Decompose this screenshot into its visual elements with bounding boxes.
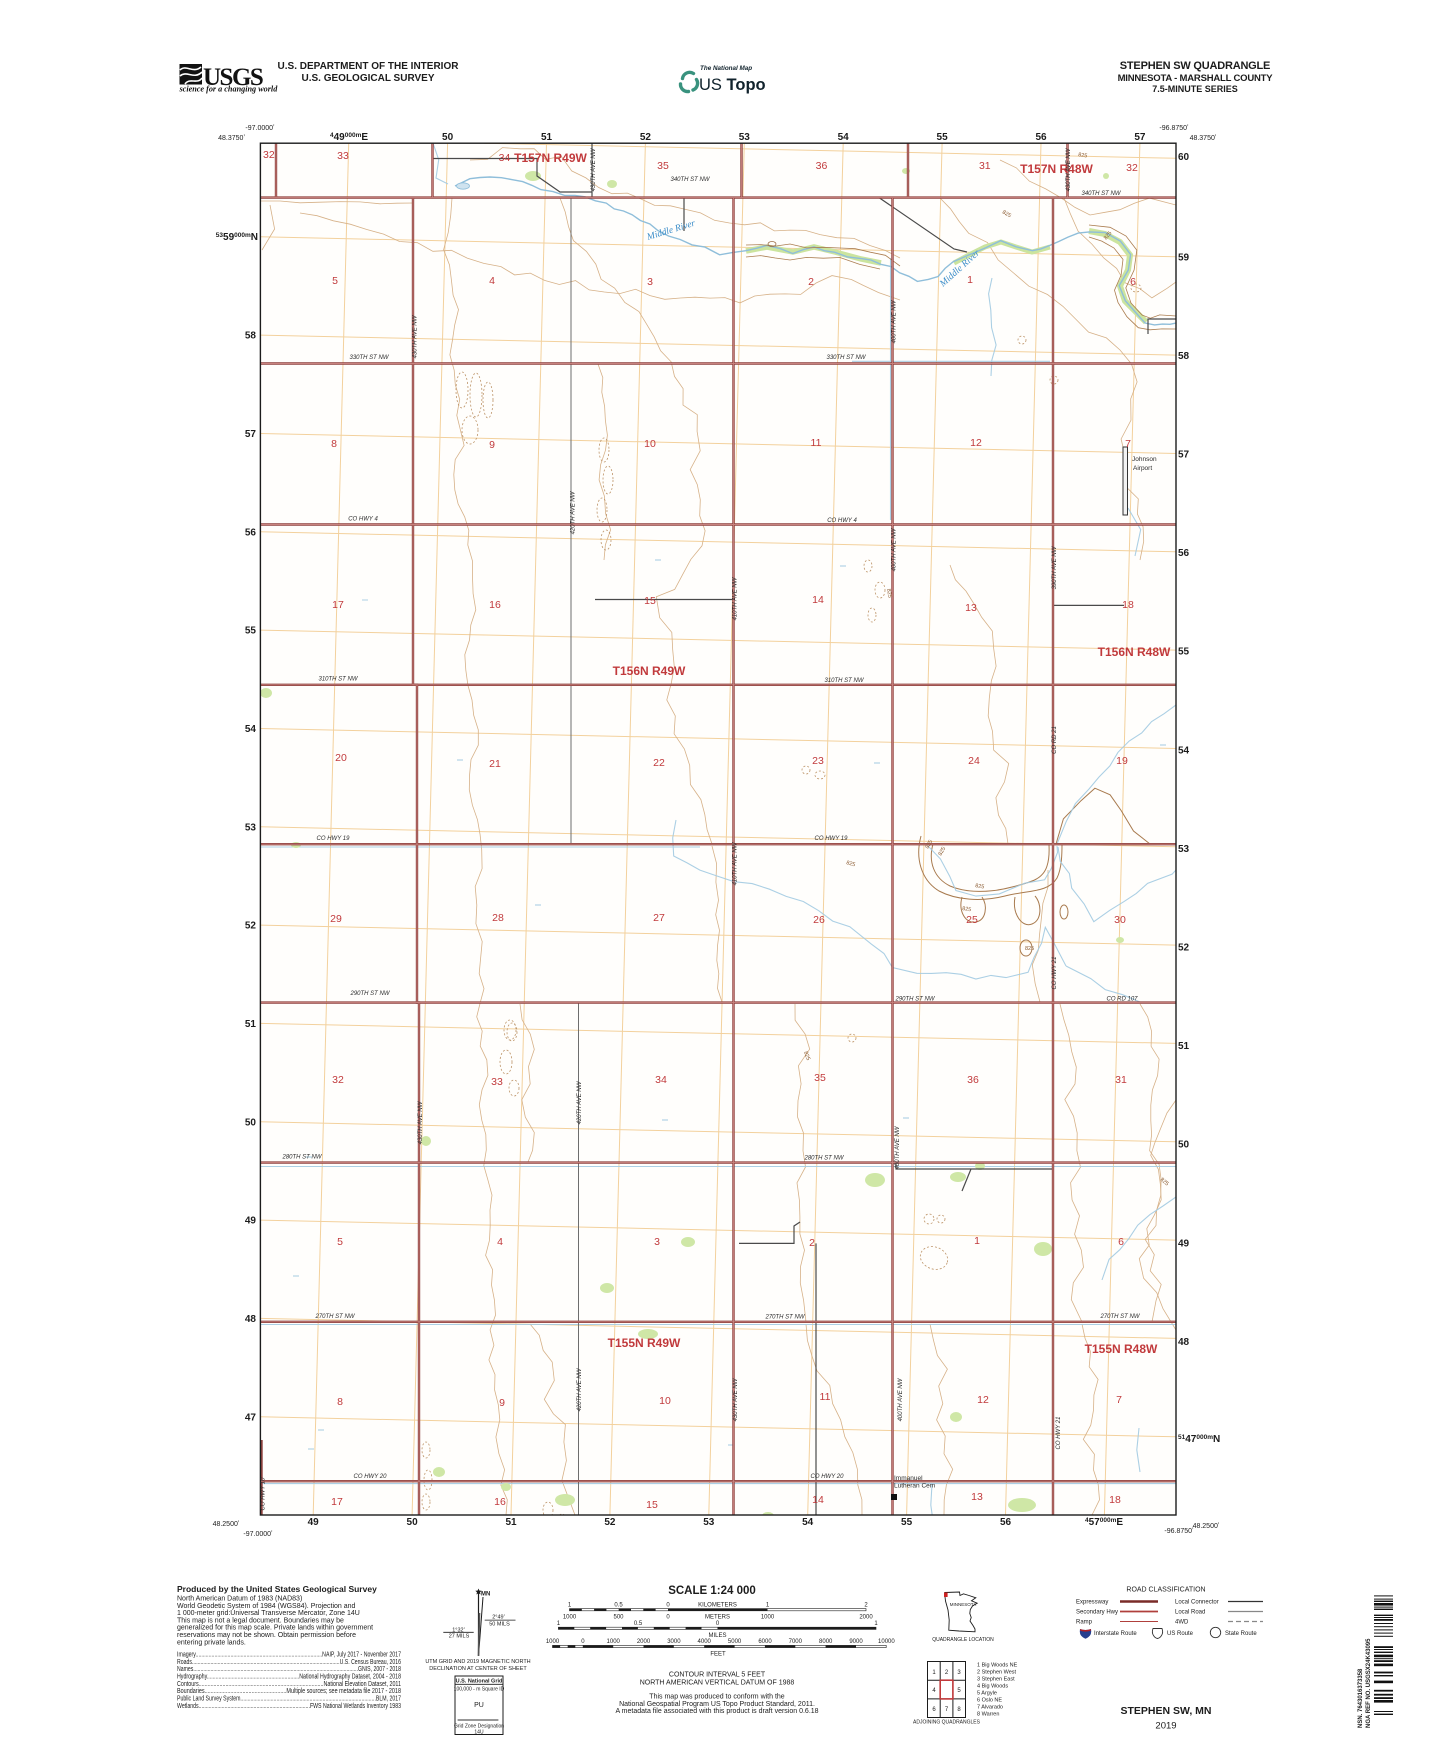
svg-text:420TH AVE NW: 420TH AVE NW [577,1367,583,1411]
svg-text:825: 825 [962,906,972,913]
svg-text:5147000mN: 5147000mN [1178,1434,1220,1445]
svg-text:16: 16 [494,1496,506,1508]
svg-text:57: 57 [1134,132,1146,143]
svg-text:50: 50 [1178,1140,1190,1151]
svg-text:6: 6 [1118,1236,1124,1248]
svg-text:53: 53 [1178,844,1190,855]
svg-text:3: 3 [647,276,653,288]
svg-text:NSN. 7643016373358: NSN. 7643016373358 [1358,1668,1364,1728]
svg-text:49: 49 [308,1517,320,1528]
svg-text:CO HWY 20: CO HWY 20 [811,1474,845,1480]
svg-text:T157N R48W: T157N R48W [1020,162,1093,176]
svg-text:13: 13 [971,1491,983,1503]
svg-text:52: 52 [245,921,257,932]
svg-text:Interstate Route: Interstate Route [1094,1631,1137,1637]
svg-text:CO HWY 20: CO HWY 20 [354,1474,388,1480]
svg-text:290TH ST NW: 290TH ST NW [349,991,390,997]
svg-text:A metadata file associated wit: A metadata file associated with this pro… [615,1708,818,1715]
svg-text:4 Big Woods: 4 Big Woods [977,1684,1008,1690]
svg-text:1 Big Woods NE: 1 Big Woods NE [977,1663,1018,1669]
svg-text:310TH ST NW: 310TH ST NW [824,678,864,684]
svg-text:330TH ST NW: 330TH ST NW [349,355,389,361]
svg-text:5: 5 [332,275,338,287]
svg-text:T156N R48W: T156N R48W [1098,645,1171,659]
svg-text:CO HWY 4: CO HWY 4 [348,517,378,523]
svg-text:science for a changing world: science for a changing world [179,85,279,94]
svg-text:Public Land Survey System.....: Public Land Survey System...............… [177,1696,401,1703]
svg-text:CO HWY 19: CO HWY 19 [317,836,351,842]
svg-text:2019: 2019 [1155,1721,1176,1732]
svg-text:5 Argyle: 5 Argyle [977,1691,997,1697]
svg-text:0: 0 [666,1615,670,1621]
svg-text:56: 56 [1000,1517,1012,1528]
svg-text:28: 28 [492,912,504,924]
svg-text:9: 9 [489,439,495,451]
svg-text:15: 15 [646,1499,658,1511]
svg-text:48: 48 [245,1314,257,1325]
svg-text:FEET: FEET [710,1651,726,1657]
svg-text:1000: 1000 [761,1615,775,1621]
svg-text:MILES: MILES [708,1633,726,1639]
svg-text:11: 11 [820,1391,831,1403]
svg-text:55: 55 [245,626,257,637]
svg-text:53: 53 [703,1517,715,1528]
svg-text:MINNESOTA: MINNESOTA [950,1602,976,1607]
svg-text:Ramp: Ramp [1076,1620,1093,1626]
svg-text:1: 1 [932,1670,936,1676]
svg-text:420TH AVE NW: 420TH AVE NW [577,1080,583,1124]
svg-text:Local Road: Local Road [1175,1610,1205,1616]
svg-text:11: 11 [811,437,822,449]
svg-text:2: 2 [945,1670,949,1676]
svg-text:825: 825 [1025,946,1034,952]
svg-text:CONTOUR INTERVAL 5 FEET: CONTOUR INTERVAL 5 FEET [669,1672,766,1679]
svg-text:54: 54 [1178,745,1190,756]
svg-text:32: 32 [263,149,275,161]
svg-text:3: 3 [654,1236,660,1248]
svg-text:430TH AVE NW: 430TH AVE NW [591,147,597,191]
svg-text:METERS: METERS [705,1615,730,1621]
svg-text:6 Oslo NE: 6 Oslo NE [977,1698,1002,1704]
svg-text:430TH AVE NW: 430TH AVE NW [418,1100,424,1144]
svg-text:CO HWY 19: CO HWY 19 [815,836,849,842]
svg-text:31: 31 [979,160,991,172]
svg-text:7: 7 [945,1707,949,1713]
svg-text:50 MILS: 50 MILS [489,1621,510,1627]
svg-text:56: 56 [1035,132,1047,143]
svg-text:8000: 8000 [819,1639,833,1645]
svg-text:1: 1 [967,274,973,286]
svg-text:entering private lands.: entering private lands. [177,1639,246,1646]
svg-text:29: 29 [330,913,342,925]
svg-text:55: 55 [937,132,949,143]
svg-text:27 MILS: 27 MILS [449,1634,470,1640]
svg-text:52: 52 [1178,943,1190,954]
svg-text:MINNESOTA - MARSHALL COUNTY: MINNESOTA - MARSHALL COUNTY [1118,73,1274,84]
svg-text:Produced by the United States: Produced by the United States Geological… [177,1584,377,1594]
svg-text:51: 51 [245,1019,257,1030]
svg-text:U.S. National Grid: U.S. National Grid [456,1679,503,1685]
svg-text:0: 0 [666,1602,670,1608]
svg-text:10000: 10000 [878,1639,895,1645]
svg-text:8 Warren: 8 Warren [977,1712,999,1718]
svg-text:7: 7 [1116,1394,1122,1406]
svg-text:51: 51 [541,132,553,143]
svg-text:7.5-MINUTE SERIES: 7.5-MINUTE SERIES [1152,84,1238,94]
svg-text:330TH ST NW: 330TH ST NW [826,355,866,361]
svg-text:5359000mN: 5359000mN [216,232,258,243]
svg-text:55: 55 [1178,647,1190,658]
svg-text:19: 19 [1116,755,1128,767]
svg-text:8: 8 [331,438,337,450]
svg-text:National Geospatial Program US: National Geospatial Program US Topo Prod… [619,1701,815,1708]
svg-text:2: 2 [809,1237,815,1249]
svg-text:Johnson: Johnson [1132,456,1157,463]
svg-text:4: 4 [489,275,495,287]
svg-text:reservations may not be shown.: reservations may not be shown. Obtain pe… [177,1632,356,1639]
svg-text:33: 33 [491,1076,503,1088]
svg-text:48.3750ʼ: 48.3750ʼ [1190,134,1217,142]
svg-text:1: 1 [974,1235,980,1247]
svg-text:51: 51 [505,1517,517,1528]
svg-text:Local Connector: Local Connector [1175,1600,1219,1606]
svg-text:T157N R49W: T157N R49W [514,151,587,165]
svg-text:generalized for this map scale: generalized for this map scale. Private … [177,1625,373,1632]
svg-text:CO HWY 21: CO HWY 21 [1052,957,1058,990]
svg-text:STEPHEN SW QUADRANGLE: STEPHEN SW QUADRANGLE [1120,60,1270,72]
svg-text:32: 32 [332,1074,344,1086]
svg-text:Roads.........................: Roads...................................… [177,1659,401,1666]
svg-text:15: 15 [644,595,656,607]
svg-text:-96.8750ʼ: -96.8750ʼ [1159,124,1189,132]
svg-text:17: 17 [332,599,344,611]
svg-text:Airport: Airport [1133,465,1152,472]
svg-text:100,000 - m Square ID: 100,000 - m Square ID [454,1687,505,1693]
svg-text:53: 53 [739,132,751,143]
svg-text:54: 54 [245,724,257,735]
svg-text:14: 14 [812,594,824,606]
svg-text:13: 13 [965,602,977,614]
svg-text:US Route: US Route [1167,1631,1194,1637]
svg-text:CO HWY 21: CO HWY 21 [1056,1417,1062,1450]
svg-text:US Topo: US Topo [699,76,766,94]
svg-text:20: 20 [335,752,347,764]
svg-text:290TH ST NW: 290TH ST NW [894,997,935,1003]
svg-text:Lutheran Cem: Lutheran Cem [894,1483,935,1490]
svg-text:49: 49 [1178,1238,1190,1249]
svg-text:52: 52 [604,1517,616,1528]
svg-text:Contours......................: Contours................................… [177,1681,401,1688]
svg-text:280TH ST NW: 280TH ST NW [281,1155,322,1161]
svg-text:34: 34 [499,152,511,164]
svg-text:400TH AVE NW: 400TH AVE NW [892,299,898,343]
svg-text:31: 31 [1115,1074,1127,1086]
svg-text:U.S. DEPARTMENT OF THE INTERIO: U.S. DEPARTMENT OF THE INTERIOR [278,61,460,72]
svg-text:340TH ST NW: 340TH ST NW [1081,191,1121,197]
svg-text:54: 54 [838,132,850,143]
svg-text:6000: 6000 [758,1639,772,1645]
svg-text:This map is not a legal docume: This map is not a legal document. Bounda… [177,1617,344,1624]
svg-text:55: 55 [901,1517,913,1528]
svg-text:NORTH AMERICAN VERTICAL DATUM: NORTH AMERICAN VERTICAL DATUM OF 1988 [640,1680,795,1687]
svg-text:North American Datum of 1983 (: North American Datum of 1983 (NAD83) [177,1596,302,1603]
svg-text:52: 52 [640,132,652,143]
svg-text:53: 53 [245,822,257,833]
svg-text:48: 48 [1178,1337,1190,1348]
svg-text:25: 25 [966,914,978,926]
svg-text:270TH ST NW: 270TH ST NW [314,1314,355,1320]
svg-text:400TH AVE NW: 400TH AVE NW [898,1377,904,1421]
svg-text:430TH AVE NW: 430TH AVE NW [1066,147,1072,191]
svg-text:4WD: 4WD [1175,1620,1189,1626]
svg-text:56: 56 [1178,548,1190,559]
svg-text:-97.0000ʼ: -97.0000ʼ [243,1530,273,1538]
svg-text:Names.........................: Names...................................… [177,1666,401,1673]
svg-text:430TH AVE NW: 430TH AVE NW [413,314,419,358]
svg-text:2000: 2000 [637,1639,651,1645]
svg-text:This map was produced to confo: This map was produced to conform with th… [649,1694,785,1701]
svg-text:56: 56 [245,527,257,538]
svg-text:U.S. GEOLOGICAL SURVEY: U.S. GEOLOGICAL SURVEY [302,73,435,84]
svg-text:18: 18 [1122,599,1134,611]
svg-text:270TH ST NW: 270TH ST NW [764,1315,805,1321]
svg-text:4: 4 [932,1688,936,1694]
svg-text:6: 6 [932,1707,936,1713]
svg-text:410TH AVE NW: 410TH AVE NW [733,841,739,885]
svg-text:-96.8750ʼ: -96.8750ʼ [1164,1527,1194,1535]
svg-text:1000: 1000 [563,1615,577,1621]
svg-text:Imagery.......................: Imagery.................................… [177,1652,401,1659]
svg-text:2 Stephen West: 2 Stephen West [977,1670,1017,1676]
svg-text:57: 57 [245,429,257,440]
svg-text:10: 10 [659,1395,671,1407]
svg-text:Wetlands......................: Wetlands................................… [177,1703,401,1710]
svg-text:340TH ST NW: 340TH ST NW [670,177,710,183]
svg-text:280TH ST NW: 280TH ST NW [803,1156,844,1162]
svg-text:T156N R49W: T156N R49W [613,664,686,678]
svg-text:50: 50 [245,1117,257,1128]
svg-text:310TH ST NW: 310TH ST NW [318,677,358,683]
svg-text:390TH AVE NW: 390TH AVE NW [1052,545,1058,589]
svg-text:23: 23 [812,755,824,767]
svg-text:5: 5 [337,1236,343,1248]
svg-text:17: 17 [331,1496,343,1508]
svg-text:35: 35 [657,160,669,172]
svg-text:Boundaries....................: Boundaries..............................… [177,1688,401,1695]
svg-text:7: 7 [1125,438,1131,450]
svg-text:0.5: 0.5 [614,1602,623,1608]
svg-text:5: 5 [957,1688,961,1694]
svg-text:410TH AVE NW: 410TH AVE NW [733,576,739,620]
svg-text:48.2500ʼ: 48.2500ʼ [1193,1522,1220,1530]
svg-text:270TH ST NW: 270TH ST NW [1099,1314,1140,1320]
svg-text:1°32ʼ: 1°32ʼ [452,1627,465,1633]
svg-text:449000mE: 449000mE [330,132,368,143]
svg-text:Immanuel: Immanuel [894,1475,923,1482]
svg-text:54: 54 [802,1517,814,1528]
svg-text:58: 58 [1178,351,1190,362]
svg-text:-97.0000ʼ: -97.0000ʼ [245,124,275,132]
svg-text:1: 1 [568,1602,572,1608]
svg-text:26: 26 [813,914,825,926]
svg-text:457000mE: 457000mE [1085,1517,1123,1528]
svg-text:4000: 4000 [698,1639,712,1645]
svg-text:34: 34 [655,1074,667,1086]
svg-text:CO HWY 4: CO HWY 4 [827,518,857,524]
svg-text:SCALE 1:24 000: SCALE 1:24 000 [668,1585,756,1597]
svg-text:16: 16 [489,599,501,611]
svg-text:57: 57 [1178,450,1190,461]
svg-text:48.2500ʼ: 48.2500ʼ [213,1520,240,1528]
svg-text:5000: 5000 [728,1639,742,1645]
svg-text:35: 35 [814,1072,826,1084]
svg-text:7 Alvarado: 7 Alvarado [977,1705,1003,1711]
svg-text:DECLINATION AT CENTER OF SHEET: DECLINATION AT CENTER OF SHEET [429,1666,527,1672]
svg-text:NGA REF NO. USGSX24K43095: NGA REF NO. USGSX24K43095 [1366,1638,1372,1728]
svg-text:3000: 3000 [667,1639,681,1645]
svg-text:Secondary Hwy: Secondary Hwy [1076,1610,1118,1616]
svg-text:50: 50 [407,1517,419,1528]
svg-text:4: 4 [497,1236,503,1248]
svg-text:0: 0 [716,1621,720,1627]
svg-text:CO RD 107: CO RD 107 [1106,997,1138,1003]
svg-text:36: 36 [967,1074,979,1086]
svg-text:KILOMETERS: KILOMETERS [698,1602,737,1608]
svg-text:14U: 14U [474,1730,484,1736]
svg-text:51: 51 [1178,1041,1190,1052]
svg-text:400TH AVE NW: 400TH AVE NW [892,527,898,571]
svg-text:27: 27 [653,912,665,924]
svg-text:2: 2 [808,276,814,288]
svg-text:9000: 9000 [849,1639,863,1645]
svg-text:T155N R48W: T155N R48W [1085,1342,1158,1356]
svg-text:48.3750ʼ: 48.3750ʼ [218,134,245,142]
svg-text:2°49ʼ: 2°49ʼ [492,1615,505,1621]
svg-text:3 Stephen East: 3 Stephen East [977,1677,1015,1683]
svg-text:1: 1 [766,1602,770,1608]
svg-text:30: 30 [1114,914,1126,926]
svg-text:500: 500 [613,1615,624,1621]
svg-text:36: 36 [816,160,828,172]
svg-text:22: 22 [653,757,665,769]
svg-text:10: 10 [644,438,656,450]
svg-text:Hydrography...................: Hydrography.............................… [177,1674,401,1681]
svg-text:CO HWY 10: CO HWY 10 [261,1477,267,1511]
svg-text:QUADRANGLE LOCATION: QUADRANGLE LOCATION [932,1637,994,1643]
svg-text:PU: PU [474,1702,484,1709]
svg-text:0.5: 0.5 [634,1621,643,1627]
svg-text:1: 1 [557,1621,561,1627]
svg-text:8: 8 [957,1707,961,1713]
svg-text:T155N R49W: T155N R49W [608,1336,681,1350]
svg-text:0: 0 [581,1639,585,1645]
svg-text:60: 60 [1178,152,1190,163]
svg-text:The National Map: The National Map [700,65,752,72]
svg-text:World Geodetic System of 1984: World Geodetic System of 1984 (WGS84). P… [177,1603,356,1610]
svg-text:1 000-meter grid:Universal Tra: 1 000-meter grid:Universal Transverse Me… [177,1610,360,1617]
svg-text:7000: 7000 [789,1639,803,1645]
svg-text:2: 2 [864,1602,868,1608]
svg-text:12: 12 [970,437,982,449]
svg-text:1: 1 [874,1621,878,1627]
svg-text:ADJOINING QUADRANGLES: ADJOINING QUADRANGLES [913,1720,981,1726]
svg-text:50: 50 [442,132,454,143]
svg-text:8: 8 [337,1396,343,1408]
svg-text:32: 32 [1126,162,1138,174]
svg-text:3: 3 [957,1670,961,1676]
svg-text:420TH AVE NW: 420TH AVE NW [571,490,577,534]
svg-text:33: 33 [337,150,349,162]
svg-text:State Route: State Route [1225,1631,1257,1637]
svg-text:UTM GRID AND 2019 MAGNETIC NOR: UTM GRID AND 2019 MAGNETIC NORTH [425,1659,530,1665]
svg-text:400TH AVE NW: 400TH AVE NW [895,1125,901,1169]
svg-text:18: 18 [1109,1494,1121,1506]
svg-text:24: 24 [968,755,980,767]
svg-text:59: 59 [1178,252,1190,263]
svg-text:47: 47 [245,1412,257,1423]
svg-text:49: 49 [245,1216,257,1227]
svg-text:6: 6 [1130,276,1136,288]
svg-text:14: 14 [812,1494,824,1506]
svg-text:2000: 2000 [859,1615,873,1621]
svg-text:430TH AVE NW: 430TH AVE NW [733,1377,739,1421]
svg-text:ROAD CLASSIFICATION: ROAD CLASSIFICATION [1126,1587,1205,1594]
svg-text:1000: 1000 [607,1639,621,1645]
svg-text:Expressway: Expressway [1076,1600,1108,1606]
svg-text:58: 58 [245,331,257,342]
svg-text:12: 12 [977,1394,989,1406]
svg-text:21: 21 [489,758,501,770]
svg-text:1000: 1000 [546,1639,560,1645]
svg-text:CO RD 21: CO RD 21 [1052,726,1058,754]
svg-text:STEPHEN SW, MN: STEPHEN SW, MN [1120,1705,1211,1717]
svg-text:9: 9 [499,1397,505,1409]
svg-text:MN: MN [481,1592,490,1598]
